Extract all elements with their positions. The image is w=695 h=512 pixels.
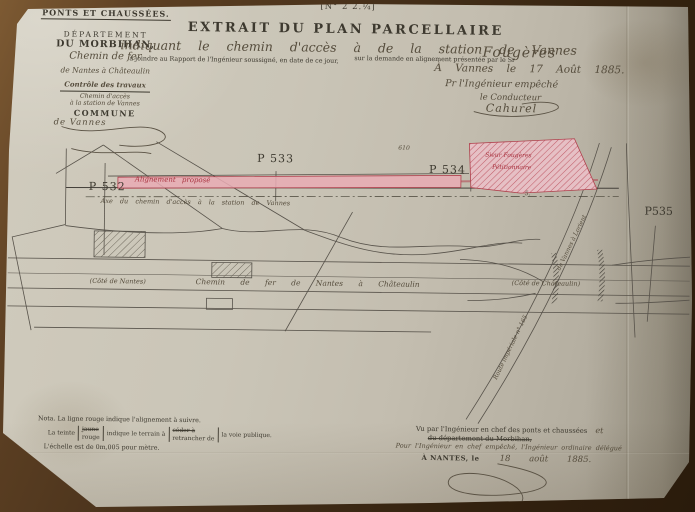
alignment-band-label: Alignement proposé xyxy=(135,175,211,184)
place-date-line: À Vannes le 17 Août 1885. xyxy=(434,62,624,76)
legend-action-options: céder à retrancher de xyxy=(168,427,218,443)
legend-option-rouge: rouge xyxy=(82,433,100,441)
plan-marker-p533: P 533 xyxy=(257,152,294,165)
bridge-abutments xyxy=(550,248,605,304)
approval-date-value: 18 août 1885. xyxy=(500,454,592,465)
petitioner-parcel xyxy=(469,137,598,194)
legend-tint-suffix: la voie publique. xyxy=(221,431,271,439)
legend-option-retrancher: retrancher de xyxy=(172,434,214,442)
legend-tint-row: La teinte jaune rouge indique le terrain… xyxy=(48,425,288,443)
photo-background: PONTS ET CHAUSSÉES. DÉPARTEMENT DU MORBI… xyxy=(0,0,695,512)
side-label-right: (Côté de Châteaulin) xyxy=(512,279,581,288)
plan-marker-p535: P535 xyxy=(644,205,673,218)
lot-number: 5. xyxy=(525,190,531,197)
legend-tint-prefix: La teinte xyxy=(48,429,75,436)
legend-block: Nota. La ligne rouge indique l'alignemen… xyxy=(38,415,288,453)
commune-name: de Vannes xyxy=(54,117,107,128)
plan-marker-p532: P 532 xyxy=(89,180,126,193)
side-label-left: (Côté de Nantes) xyxy=(90,277,146,286)
plan-marker-p534: P 534 xyxy=(429,163,466,176)
place-printed-label: À NANTES, le xyxy=(421,454,479,463)
legend-tint-middle: indique le terrain à xyxy=(107,430,166,438)
railway-name-line2: de Nantes à Châteaulin xyxy=(40,65,170,76)
building-hatched-blocks xyxy=(93,231,252,310)
document-content: PONTS ET CHAUSSÉES. DÉPARTEMENT DU MORBI… xyxy=(0,0,695,512)
doc-number: [N° 2 2.¼] xyxy=(283,1,413,13)
legend-tint-options: jaune rouge xyxy=(78,426,104,441)
parcel-number: 610 xyxy=(398,145,410,152)
chief-engineer-signature xyxy=(448,463,547,511)
for-engineer-line: Pr l'Ingénieur empêché xyxy=(445,78,558,90)
parcel-owner-line2: Pétitionnaire xyxy=(492,164,531,171)
paper-sheet: PONTS ET CHAUSSÉES. DÉPARTEMENT DU MORBI… xyxy=(0,0,695,512)
parcel-owner-line1: Sieur Fougères xyxy=(485,152,532,160)
vu-added-word: et xyxy=(595,426,603,435)
controle-line: Contrôle des travaux xyxy=(40,79,170,90)
approval-place-date: À NANTES, le 18 août 1885. xyxy=(421,453,591,465)
service-header: PONTS ET CHAUSSÉES. xyxy=(41,7,171,21)
conductor-signature: Cahurel xyxy=(486,102,538,116)
